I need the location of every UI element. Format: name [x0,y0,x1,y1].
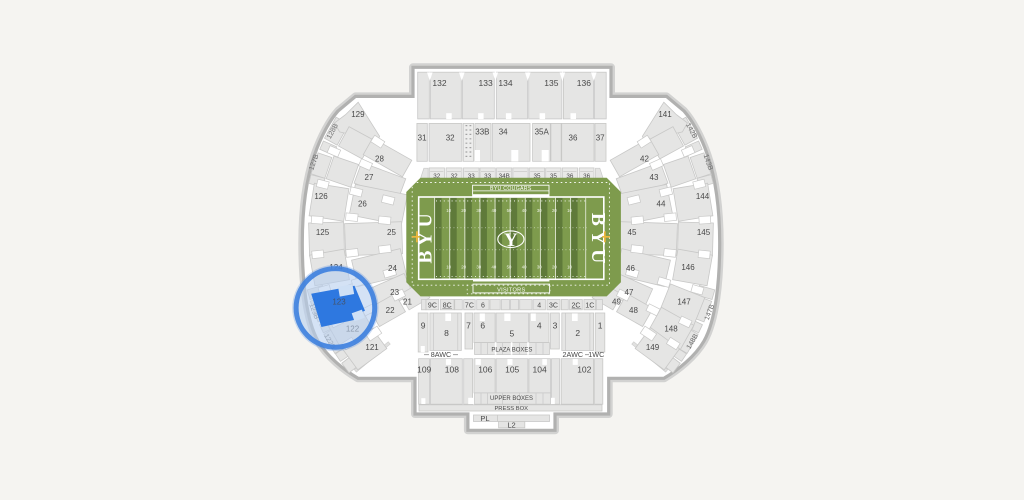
svg-text:20: 20 [552,208,557,213]
svg-text:VISITORS: VISITORS [497,287,525,293]
svg-text:135: 135 [544,78,558,88]
svg-text:121: 121 [365,343,379,352]
svg-text:40: 40 [492,208,497,213]
svg-text:2AWC: 2AWC [563,350,584,359]
svg-text:50: 50 [507,208,512,213]
svg-text:7: 7 [466,320,471,330]
svg-text:37: 37 [596,134,605,143]
svg-text:20: 20 [461,265,466,270]
svg-text:43: 43 [650,173,659,182]
svg-text:8: 8 [444,328,449,338]
svg-text:36: 36 [569,134,578,143]
svg-text:21: 21 [403,297,412,306]
svg-text:9: 9 [421,320,426,330]
svg-text:45: 45 [628,228,637,237]
svg-text:PL: PL [480,414,489,423]
svg-text:31: 31 [418,134,427,143]
svg-text:L2: L2 [507,420,515,429]
svg-text:UPPER BOXES: UPPER BOXES [490,396,533,402]
svg-text:46: 46 [626,264,635,273]
svg-text:27: 27 [365,173,374,182]
svg-text:5: 5 [510,329,515,339]
svg-text:104: 104 [533,365,547,375]
svg-text:33B: 33B [475,128,489,137]
svg-text:3: 3 [553,320,558,330]
svg-text:24: 24 [388,264,397,273]
svg-text:10: 10 [567,265,572,270]
svg-text:49: 49 [612,297,621,306]
svg-text:147: 147 [677,297,691,306]
svg-text:PRESS BOX: PRESS BOX [494,406,528,412]
svg-text:6: 6 [481,303,485,310]
svg-text:6: 6 [480,320,485,330]
svg-text:23: 23 [390,288,399,297]
svg-text:34: 34 [499,128,508,137]
svg-text:PLAZA BOXES: PLAZA BOXES [491,348,532,354]
svg-text:10: 10 [567,208,572,213]
svg-text:35A: 35A [535,128,550,137]
svg-text:Y: Y [504,230,518,251]
svg-text:42: 42 [640,154,649,163]
svg-text:44: 44 [657,199,666,208]
svg-text:40: 40 [522,265,527,270]
svg-text:20: 20 [461,208,466,213]
svg-text:125: 125 [316,228,330,237]
svg-text:102: 102 [577,365,591,375]
svg-text:40: 40 [492,265,497,270]
svg-text:20: 20 [552,265,557,270]
svg-text:126: 126 [314,192,328,201]
svg-text:145: 145 [697,228,711,237]
svg-text:129: 129 [351,110,365,119]
svg-text:9C: 9C [428,303,437,310]
svg-text:22: 22 [386,306,395,315]
svg-text:10: 10 [446,208,451,213]
svg-text:10: 10 [446,265,451,270]
svg-text:4: 4 [537,320,542,330]
svg-text:48: 48 [629,306,638,315]
svg-text:4: 4 [537,303,541,310]
svg-text:144: 144 [696,192,710,201]
svg-text:2: 2 [575,328,580,338]
svg-text:149: 149 [646,343,660,352]
svg-text:134: 134 [498,78,512,88]
svg-text:8AWC: 8AWC [431,350,452,359]
svg-text:105: 105 [505,365,519,375]
svg-text:26: 26 [358,199,367,208]
svg-text:32: 32 [446,134,455,143]
svg-text:141: 141 [658,110,672,119]
svg-text:148: 148 [664,325,678,334]
svg-text:132: 132 [432,78,446,88]
svg-text:1C: 1C [585,303,594,310]
svg-text:40: 40 [522,208,527,213]
svg-text:7C: 7C [465,303,474,310]
svg-text:106: 106 [478,365,492,375]
svg-text:133: 133 [479,78,493,88]
svg-text:47: 47 [625,288,634,297]
svg-text:1WC: 1WC [588,350,604,359]
svg-text:1: 1 [598,320,603,330]
svg-text:50: 50 [507,265,512,270]
svg-text:30: 30 [537,265,542,270]
svg-text:30: 30 [537,208,542,213]
svg-text:BYU COUGARS: BYU COUGARS [490,186,532,192]
svg-text:28: 28 [375,154,384,163]
svg-text:108: 108 [445,365,459,375]
svg-text:3C: 3C [549,303,558,310]
svg-text:146: 146 [681,263,695,272]
svg-text:109: 109 [417,365,431,375]
svg-text:30: 30 [476,208,481,213]
svg-text:30: 30 [476,265,481,270]
svg-text:123: 123 [332,297,346,306]
svg-text:136: 136 [577,78,591,88]
svg-text:25: 25 [387,228,396,237]
